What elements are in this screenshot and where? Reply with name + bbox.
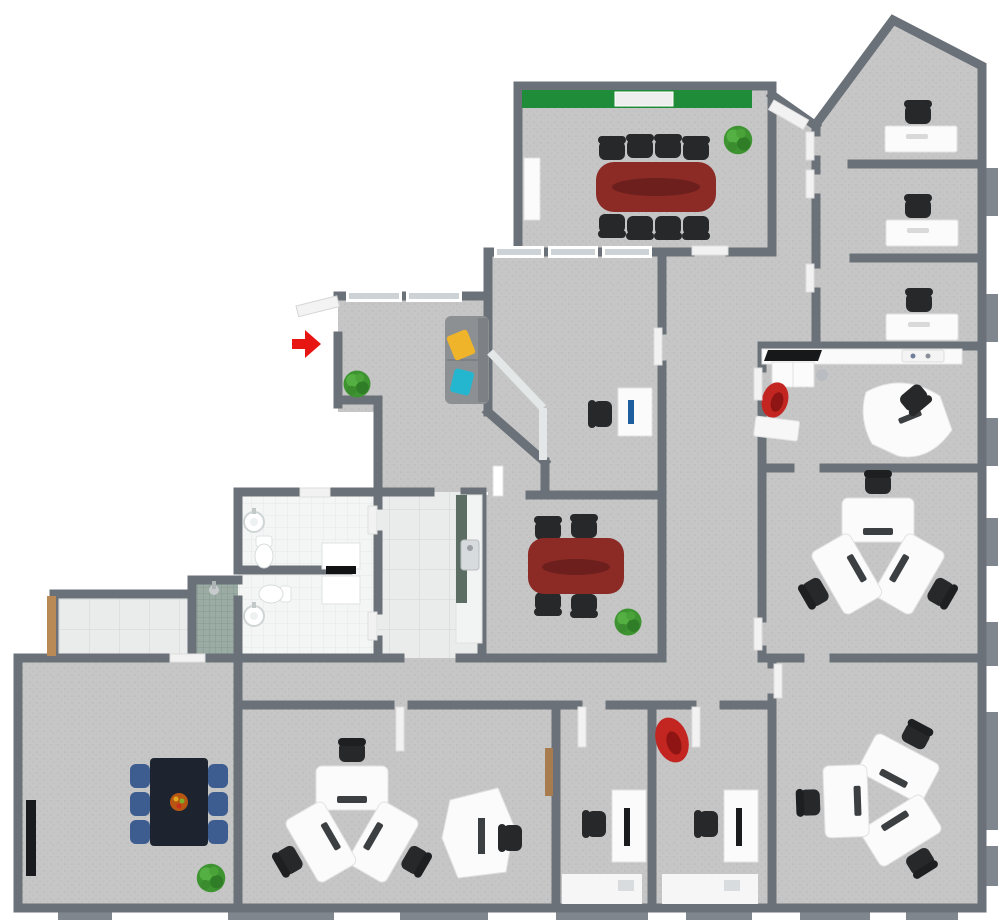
- floor-private-offices: [812, 20, 982, 350]
- door: [692, 707, 700, 747]
- credenza: [524, 158, 540, 220]
- wooden-entry-door: [47, 596, 56, 656]
- window-bay: [662, 874, 758, 904]
- door: [578, 707, 586, 747]
- task-chair: [588, 400, 612, 428]
- monitor-blue: [628, 400, 634, 424]
- floor-hallway-bottom: [238, 658, 772, 705]
- sofa: [445, 316, 489, 404]
- reception-desk: [618, 388, 652, 436]
- plant: [344, 371, 371, 398]
- conference-table-inlay: [612, 178, 700, 196]
- vanity-upper: [322, 543, 360, 569]
- monitor: [736, 808, 742, 846]
- monitor: [624, 808, 630, 846]
- vanity-faucets: [326, 566, 356, 574]
- kitchenette: [456, 495, 482, 643]
- task-chair: [694, 810, 718, 838]
- entrance-door: [296, 296, 339, 317]
- bottom-right-office-door: [774, 664, 782, 698]
- plant: [197, 864, 226, 893]
- radiator: [26, 800, 36, 876]
- floor-team-office-right: [762, 468, 978, 658]
- floor-plan-canvas: [0, 0, 1000, 924]
- task-chair: [498, 824, 522, 852]
- wood-door: [545, 748, 553, 796]
- corridor-door: [654, 328, 662, 365]
- stainless-sink: [461, 540, 479, 570]
- floor-corridor-top: [662, 252, 816, 346]
- floor-corridor: [662, 346, 762, 658]
- tray: [902, 350, 944, 362]
- vanity-lower: [322, 576, 360, 604]
- toilet: [255, 536, 273, 568]
- floor-lounge-lower: [378, 400, 488, 492]
- monitor: [478, 818, 485, 854]
- printer: [764, 350, 822, 361]
- break-room-door: [170, 654, 205, 662]
- floor-team-office-bottom-right: [772, 658, 978, 908]
- plant: [615, 609, 642, 636]
- team-office-right-door: [754, 618, 762, 650]
- door: [754, 368, 762, 400]
- trash-can: [816, 369, 828, 381]
- floor-plan-svg: [0, 0, 1000, 924]
- entrance-arrow: [292, 330, 321, 358]
- door: [396, 707, 404, 751]
- door-jamb: [493, 466, 503, 496]
- whiteboard: [615, 92, 673, 106]
- fruit-bowl: [170, 793, 188, 811]
- entrance: [292, 296, 339, 358]
- conference-door: [692, 246, 728, 255]
- task-chair: [582, 810, 606, 838]
- plant: [724, 126, 753, 155]
- toilet: [259, 585, 291, 603]
